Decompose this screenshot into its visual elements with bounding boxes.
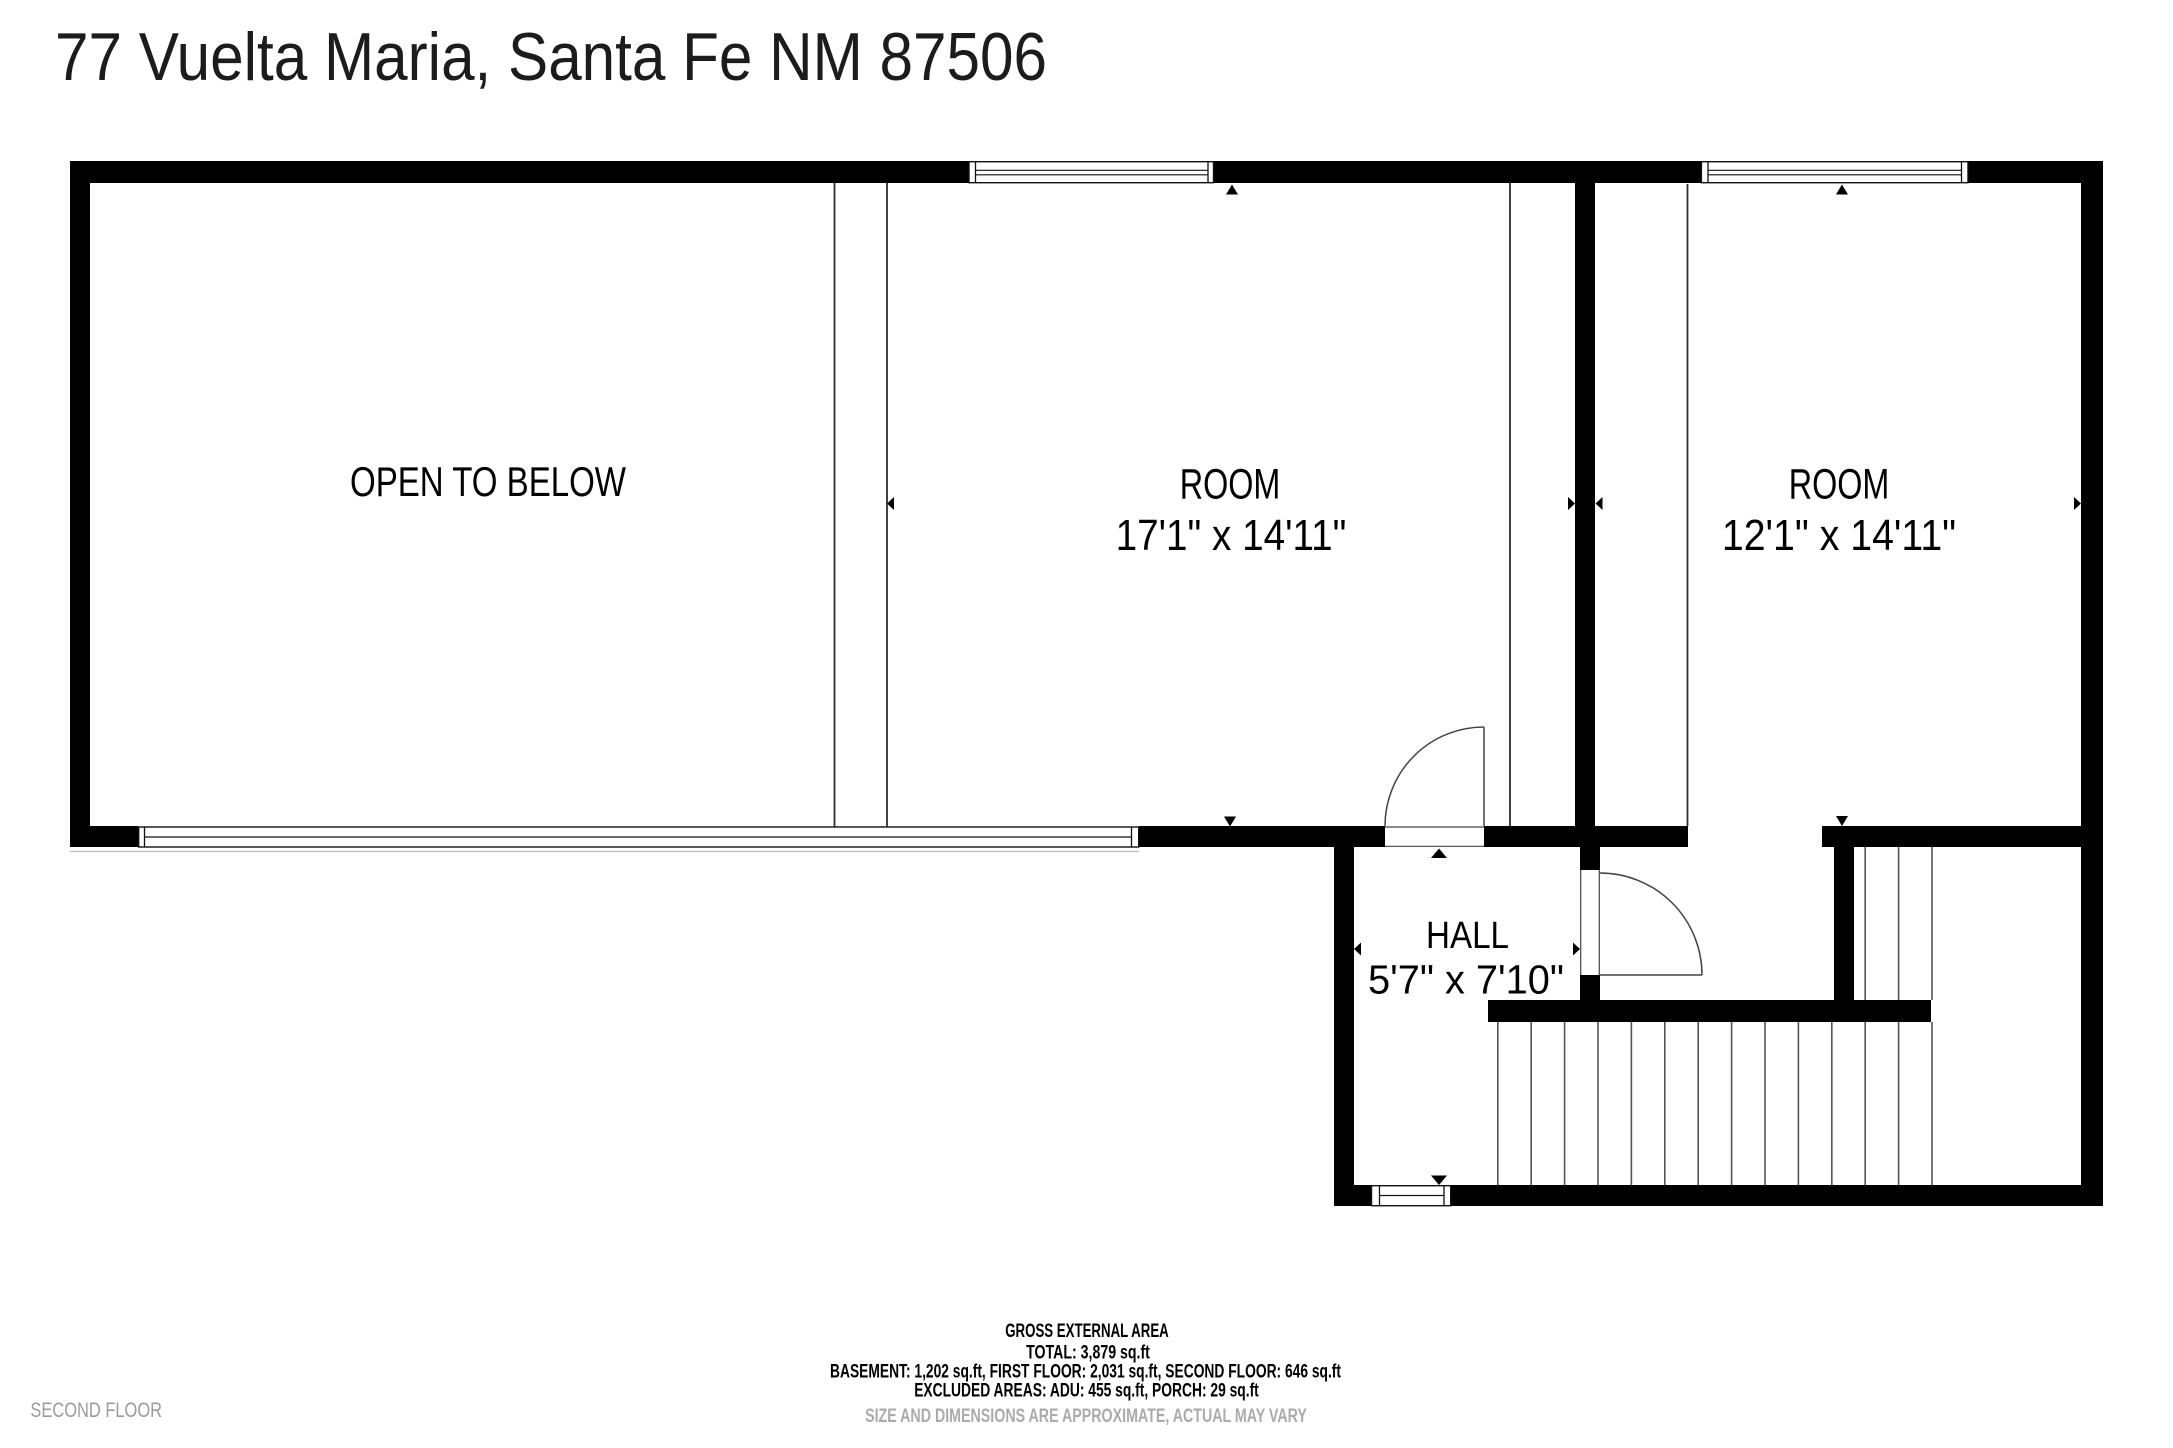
svg-text:HALL: HALL: [1426, 915, 1509, 957]
svg-text:SECOND FLOOR: SECOND FLOOR: [30, 1398, 162, 1422]
svg-text:ROOM: ROOM: [1789, 461, 1890, 509]
svg-text:17'1" x 14'11": 17'1" x 14'11": [1116, 511, 1347, 560]
svg-text:77 Vuelta Maria, Santa Fe NM 8: 77 Vuelta Maria, Santa Fe NM 87506: [55, 19, 1047, 95]
svg-text:5'7" x 7'10": 5'7" x 7'10": [1368, 956, 1564, 1002]
svg-text:BASEMENT: 1,202 sq.ft, FIRST F: BASEMENT: 1,202 sq.ft, FIRST FLOOR: 2,03…: [830, 1362, 1341, 1383]
svg-text:ROOM: ROOM: [1180, 461, 1281, 509]
svg-text:OPEN TO BELOW: OPEN TO BELOW: [350, 458, 626, 505]
svg-text:TOTAL: 3,879 sq.ft: TOTAL: 3,879 sq.ft: [1026, 1343, 1150, 1364]
svg-text:GROSS EXTERNAL AREA: GROSS EXTERNAL AREA: [1005, 1321, 1169, 1342]
svg-text:12'1" x 14'11": 12'1" x 14'11": [1722, 511, 1956, 560]
svg-text:SIZE AND DIMENSIONS ARE APPROX: SIZE AND DIMENSIONS ARE APPROXIMATE, ACT…: [865, 1406, 1307, 1427]
svg-text:EXCLUDED AREAS: ADU: 455 sq.ft: EXCLUDED AREAS: ADU: 455 sq.ft, PORCH: 2…: [914, 1381, 1259, 1402]
